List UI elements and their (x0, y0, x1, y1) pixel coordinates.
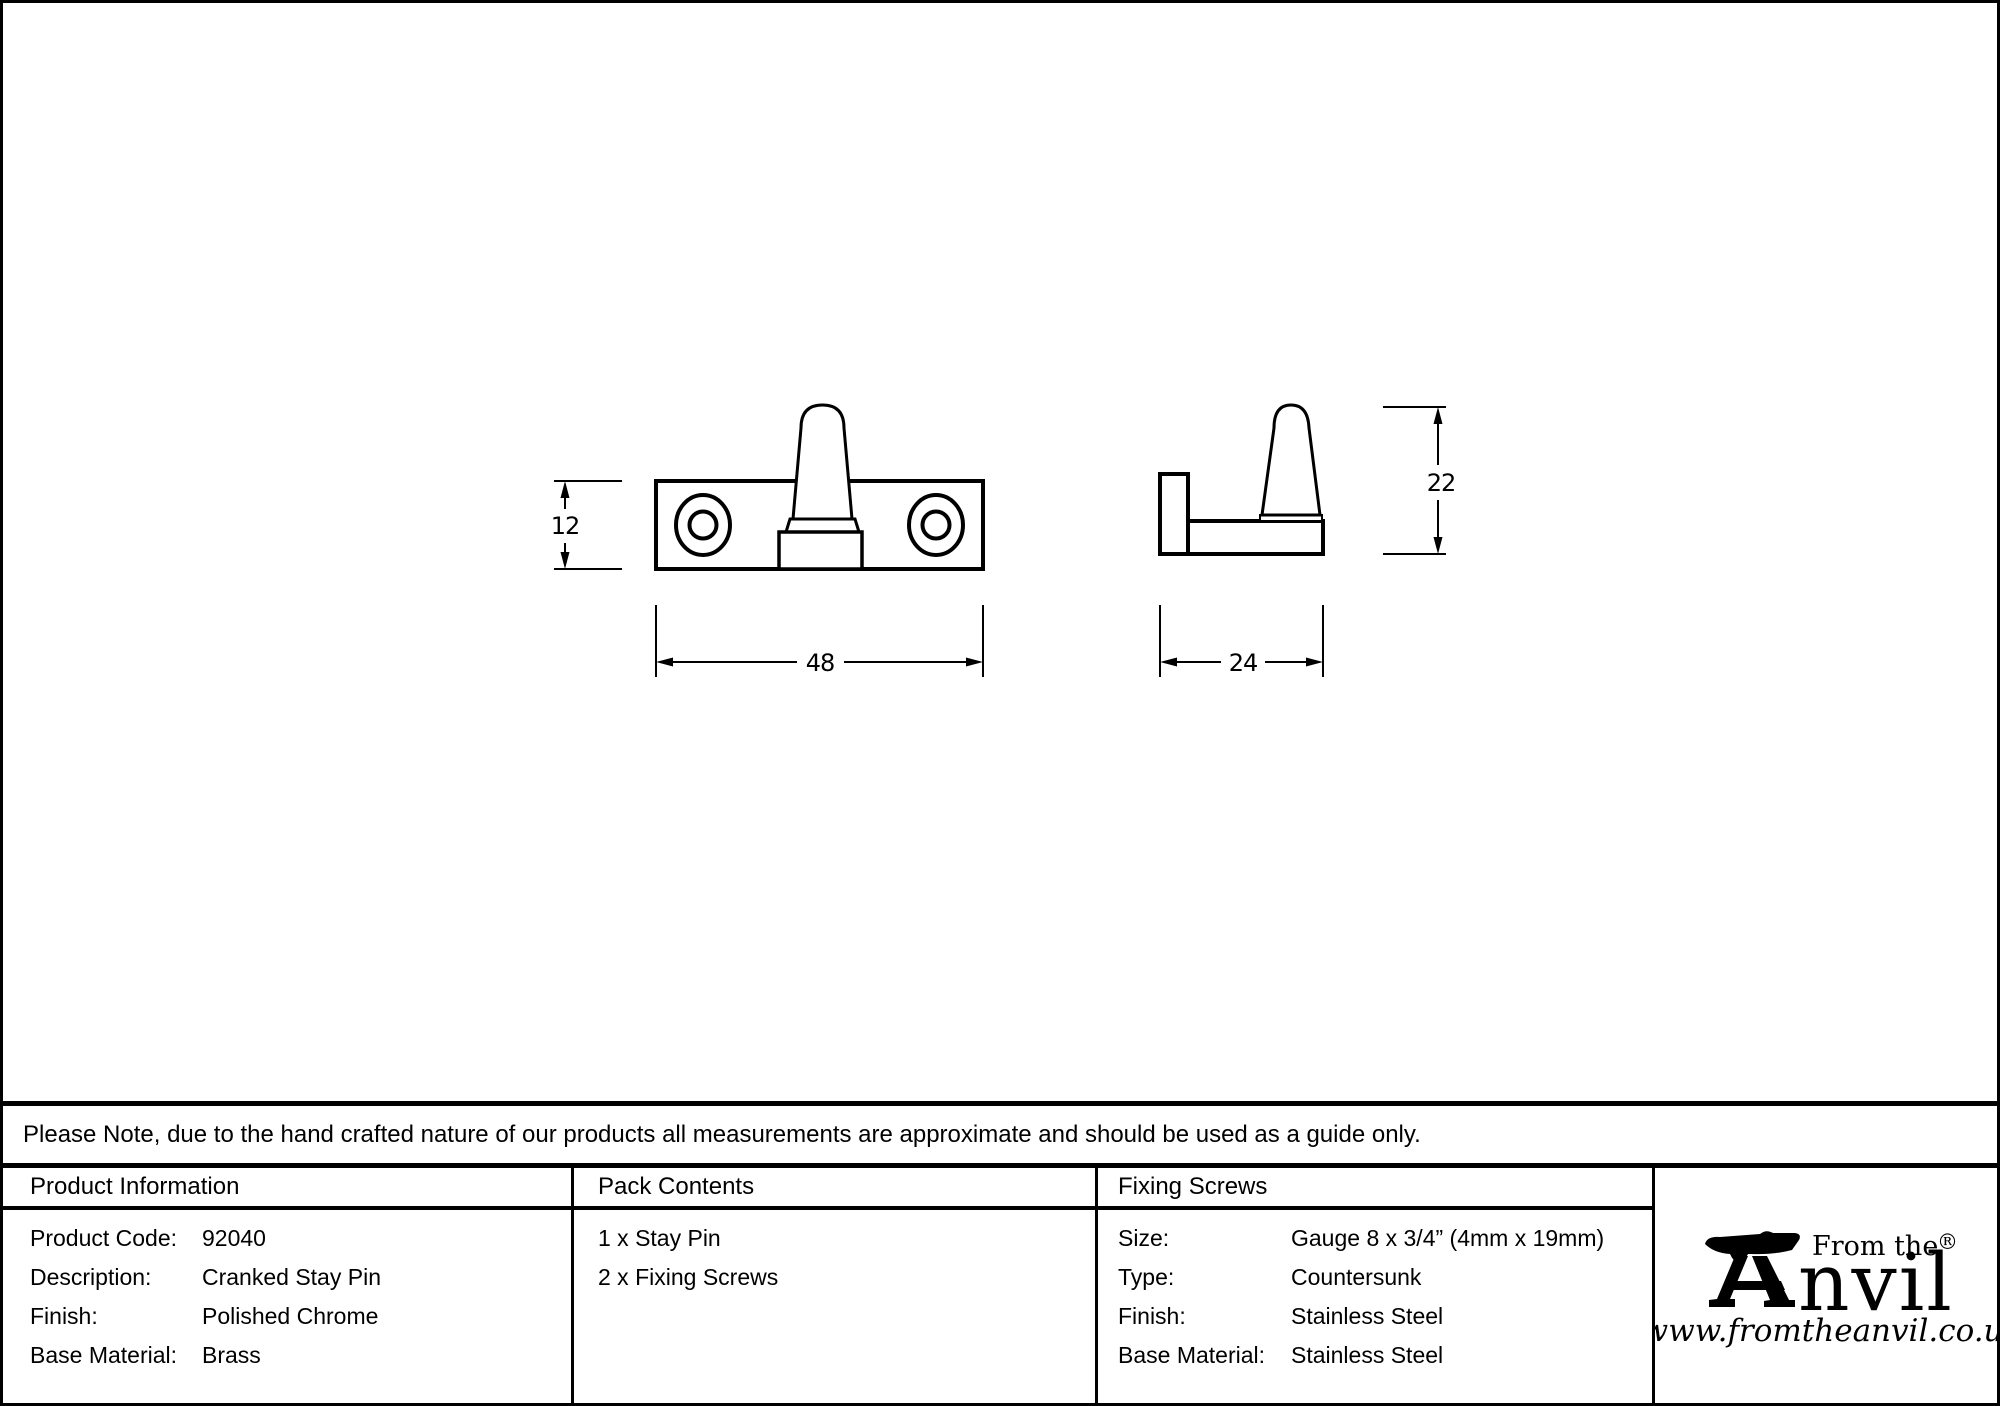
dimension-side-height: 22 (1383, 407, 1455, 554)
arrow-left-icon (656, 658, 673, 667)
dim-label-22: 22 (1427, 469, 1456, 497)
column-divider-1 (571, 1163, 574, 1406)
measurement-note-text: Please Note, due to the hand crafted nat… (3, 1121, 1421, 1149)
table-row: Finish:Stainless Steel (1118, 1297, 1604, 1336)
finish-label: Finish: (30, 1297, 202, 1336)
table-row: Description:Cranked Stay Pin (30, 1258, 381, 1297)
spec-sheet-page: 12 48 22 (0, 0, 2000, 1406)
arrow-up-icon (1434, 407, 1443, 424)
table-row: Base Material:Stainless Steel (1118, 1336, 1604, 1375)
arrow-left-icon (1160, 658, 1177, 667)
front-pin-base (779, 532, 862, 569)
product-code-value: 92040 (202, 1225, 266, 1251)
list-item: 1 x Stay Pin (598, 1219, 778, 1258)
screw-finish-label: Finish: (1118, 1297, 1291, 1336)
header-product-information: Product Information (30, 1168, 239, 1206)
arrow-up-icon (561, 481, 570, 498)
side-view (1160, 405, 1323, 554)
table-row: Finish:Polished Chrome (30, 1297, 381, 1336)
dimension-front-width: 48 (656, 605, 983, 677)
screw-finish-value: Stainless Steel (1291, 1303, 1443, 1329)
product-code-label: Product Code: (30, 1219, 202, 1258)
side-pin (1262, 405, 1320, 515)
arrow-right-icon (966, 658, 983, 667)
registered-trademark-icon: ® (1937, 1230, 1958, 1254)
side-cranked-upstand (1160, 474, 1188, 554)
screw-size-value: Gauge 8 x 3/4” (4mm x 19mm) (1291, 1225, 1604, 1251)
front-screw-hole-left-inner (690, 512, 717, 539)
arrow-down-icon (1434, 537, 1443, 554)
fixing-screws-panel: Size:Gauge 8 x 3/4” (4mm x 19mm) Type:Co… (1118, 1219, 1604, 1375)
column-divider-2 (1095, 1163, 1098, 1406)
table-row: Type:Countersunk (1118, 1258, 1604, 1297)
measurement-note-band: Please Note, due to the hand crafted nat… (3, 1106, 1997, 1163)
dim-label-12: 12 (551, 512, 580, 540)
header-pack-contents: Pack Contents (598, 1168, 754, 1206)
dimension-side-width: 24 (1160, 605, 1323, 677)
dim-label-48: 48 (806, 649, 835, 677)
front-screw-hole-right-inner (923, 512, 950, 539)
side-plate (1188, 521, 1323, 554)
header-fixing-screws: Fixing Screws (1118, 1168, 1267, 1206)
product-information-panel: Product Code:92040 Description:Cranked S… (30, 1219, 381, 1375)
table-row: Product Code:92040 (30, 1219, 381, 1258)
screw-type-label: Type: (1118, 1258, 1291, 1297)
header-bottom-rule (3, 1206, 1652, 1210)
dimension-front-height: 12 (551, 481, 622, 569)
dim-label-24: 24 (1229, 649, 1258, 677)
table-row: Base Material:Brass (30, 1336, 381, 1375)
screw-base-material-value: Stainless Steel (1291, 1342, 1443, 1368)
front-view (656, 405, 983, 569)
front-pin (793, 405, 852, 519)
screw-base-material-label: Base Material: (1118, 1336, 1291, 1375)
finish-value: Polished Chrome (202, 1303, 378, 1329)
description-value: Cranked Stay Pin (202, 1264, 381, 1290)
base-material-value: Brass (202, 1342, 261, 1368)
list-item: 2 x Fixing Screws (598, 1258, 778, 1297)
anvil-icon (1705, 1231, 1800, 1307)
arrow-down-icon (561, 552, 570, 569)
logo-website: www.fromtheanvil.co.uk (1655, 1313, 1997, 1349)
front-pin-collar (786, 519, 859, 532)
pack-contents-panel: 1 x Stay Pin 2 x Fixing Screws (598, 1219, 778, 1297)
brand-logo: From the nvil ® www.fromtheanvil.co.uk (1655, 1166, 1997, 1406)
arrow-right-icon (1306, 658, 1323, 667)
description-label: Description: (30, 1258, 202, 1297)
screw-size-label: Size: (1118, 1219, 1291, 1258)
screw-type-value: Countersunk (1291, 1264, 1421, 1290)
base-material-label: Base Material: (30, 1336, 202, 1375)
table-row: Size:Gauge 8 x 3/4” (4mm x 19mm) (1118, 1219, 1604, 1258)
technical-drawing: 12 48 22 (3, 3, 2000, 1103)
